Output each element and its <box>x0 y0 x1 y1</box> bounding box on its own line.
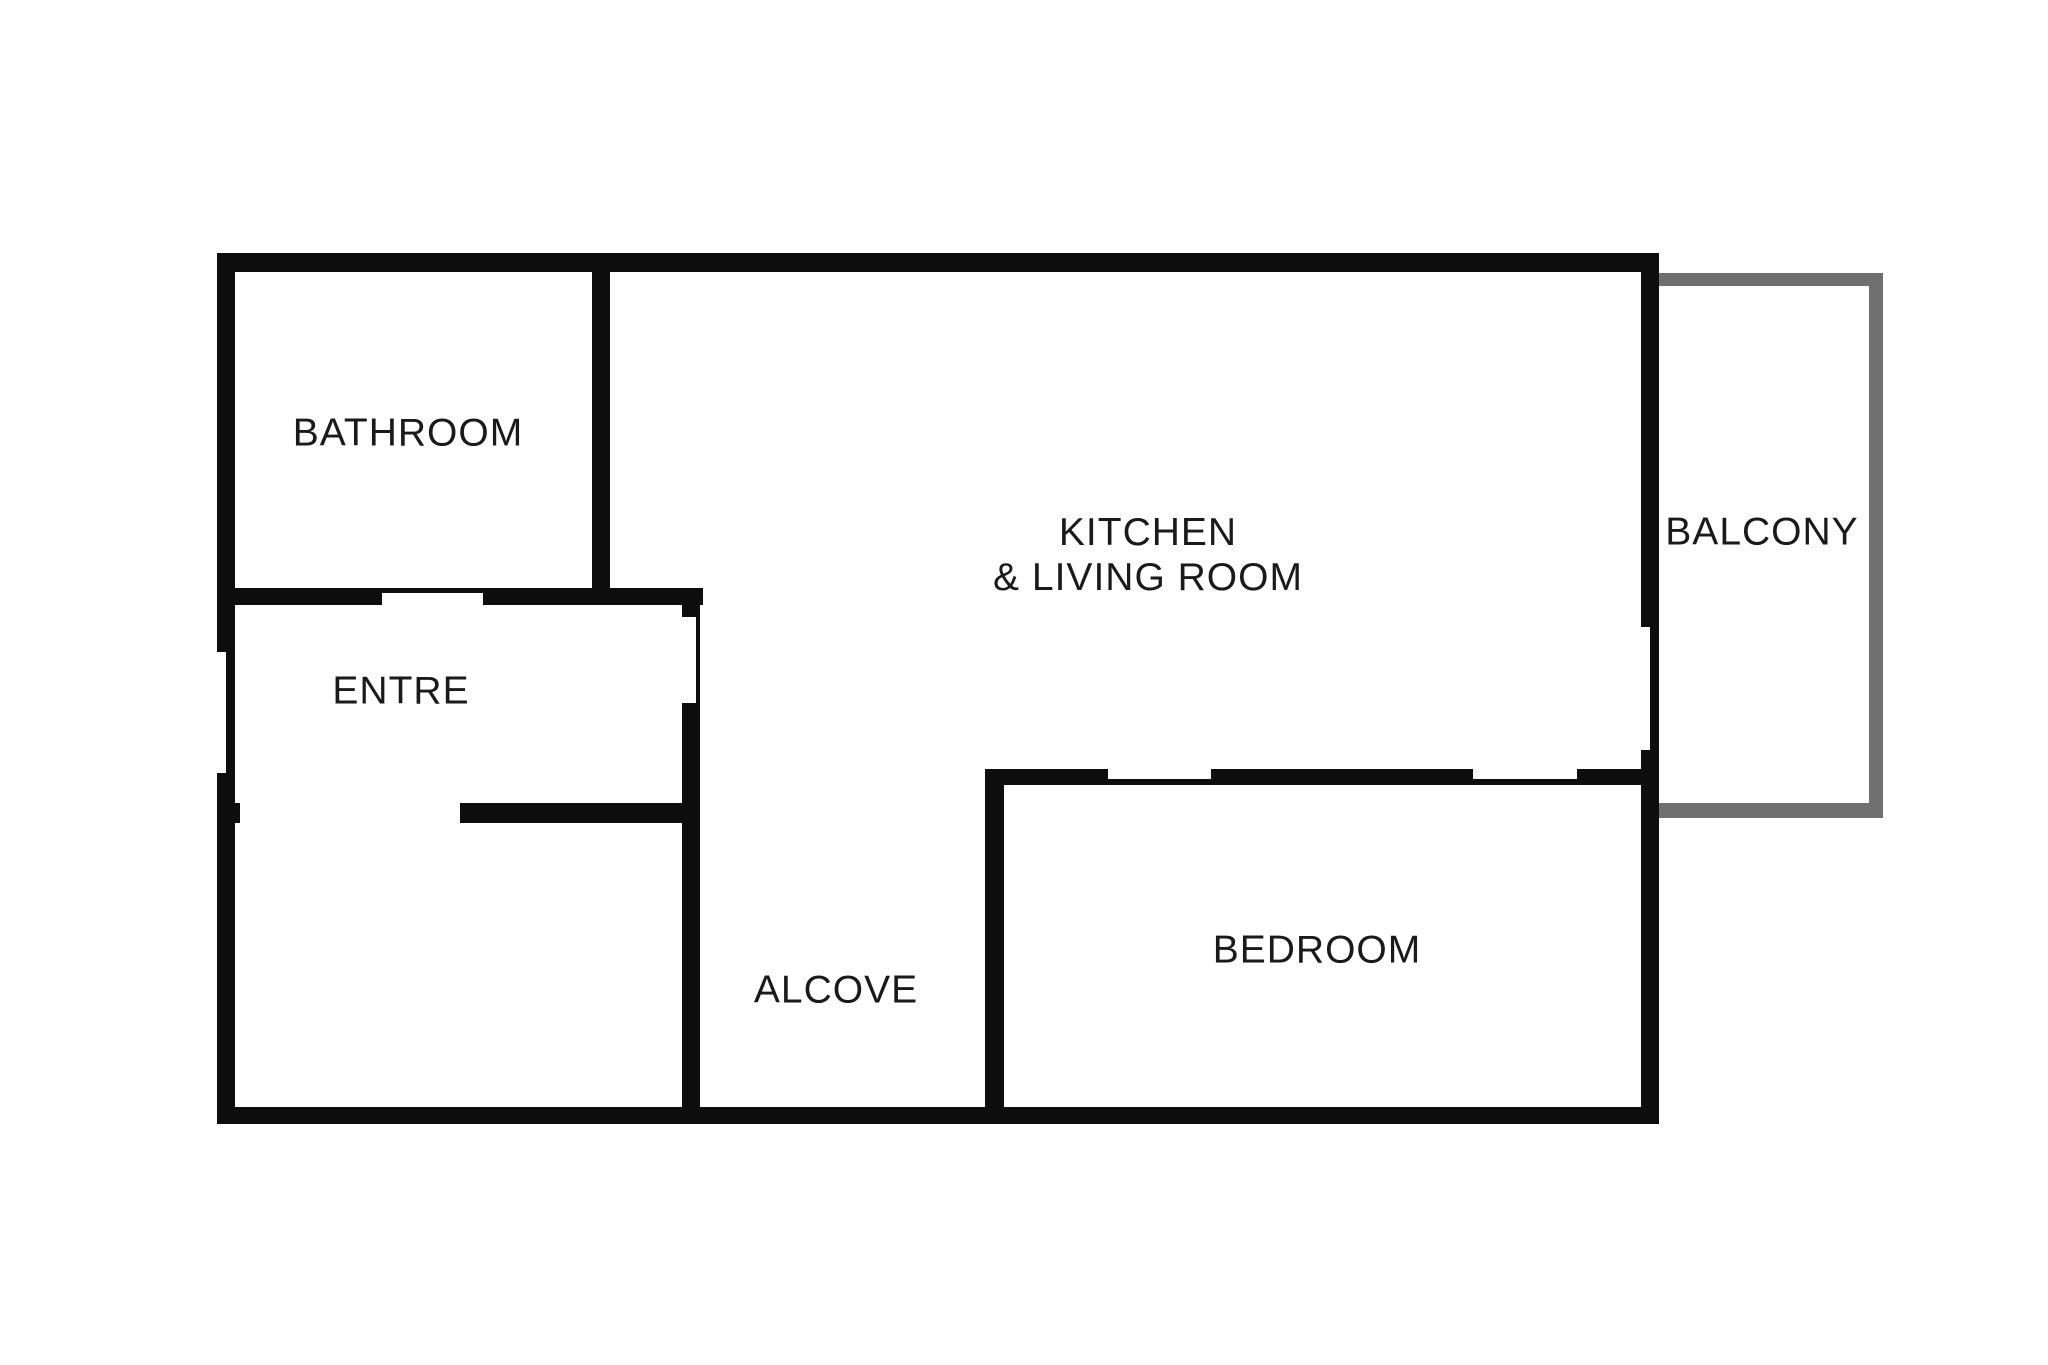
room-label-alcove: ALCOVE <box>754 968 918 1013</box>
entre-east-wall-stub <box>682 605 700 617</box>
entre-east-wall-lower <box>682 703 700 1107</box>
balcony-south-wall <box>1659 803 1883 818</box>
entre-south-wall-nub <box>235 803 240 823</box>
room-label-line: BALCONY <box>1665 510 1858 555</box>
room-label-entre: ENTRE <box>332 669 469 714</box>
bathroom-door-sill <box>382 588 483 593</box>
bedroom-door-sill-east <box>1473 779 1577 785</box>
room-label-line: KITCHEN <box>993 510 1303 555</box>
exterior-north-wall <box>217 253 1659 272</box>
bathroom-south-wall-west <box>235 588 382 605</box>
balcony-east-wall <box>1869 273 1883 818</box>
exterior-south-wall <box>217 1107 1659 1124</box>
room-label-kitchen-living-room: KITCHEN& LIVING ROOM <box>993 510 1303 600</box>
exterior-west-wall-entry-thin <box>226 652 235 773</box>
bathroom-south-wall-east <box>483 588 703 605</box>
room-label-line: BEDROOM <box>1213 928 1422 973</box>
room-label-line: & LIVING ROOM <box>993 555 1303 600</box>
bedroom-west-wall <box>985 769 1004 1107</box>
room-label-line: ALCOVE <box>754 968 918 1013</box>
exterior-west-wall-lower <box>217 773 235 1124</box>
exterior-east-wall-upper <box>1641 253 1659 627</box>
entre-door-sill <box>696 617 700 703</box>
exterior-east-wall-balcony-door <box>1650 627 1659 750</box>
exterior-east-wall-lower <box>1641 750 1659 1124</box>
bathroom-east-wall <box>592 272 610 605</box>
exterior-west-wall-upper <box>217 253 235 652</box>
bedroom-door-sill-west <box>1108 779 1211 785</box>
room-label-bathroom: BATHROOM <box>293 411 523 456</box>
room-label-balcony: BALCONY <box>1665 510 1858 555</box>
floor-plan: BATHROOMENTREKITCHEN& LIVING ROOMBALCONY… <box>0 0 2048 1365</box>
kitchen-bedroom-divider-east <box>1577 769 1659 785</box>
room-label-line: BATHROOM <box>293 411 523 456</box>
kitchen-bedroom-divider-mid <box>1211 769 1473 785</box>
room-label-line: ENTRE <box>332 669 469 714</box>
balcony-north-wall <box>1659 273 1883 286</box>
entre-south-wall <box>460 803 700 823</box>
room-label-bedroom: BEDROOM <box>1213 928 1422 973</box>
